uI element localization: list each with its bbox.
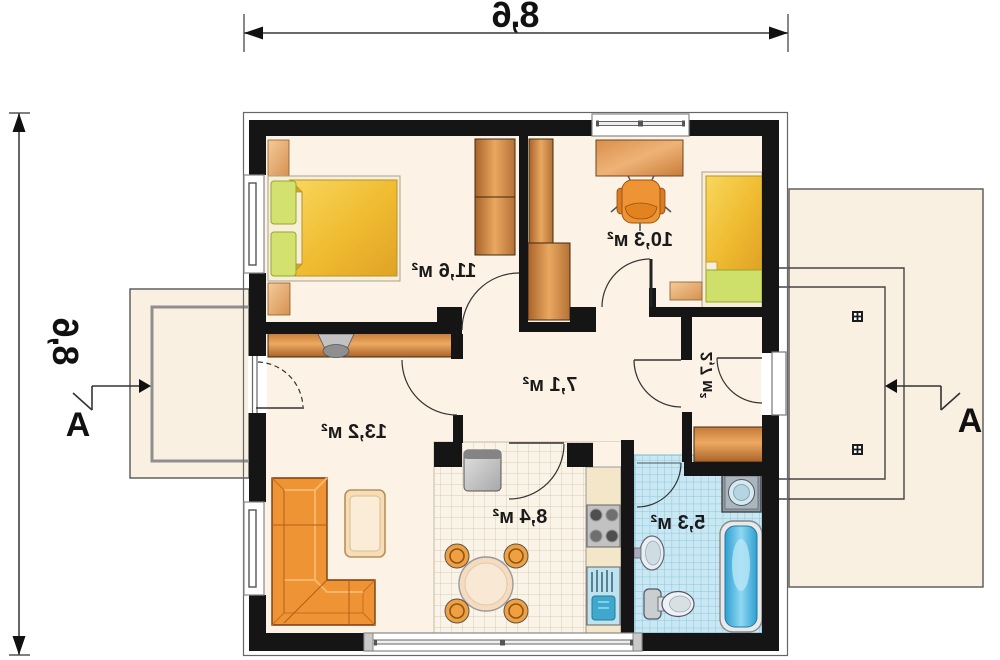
svg-text:7,1 м²: 7,1 м² <box>522 374 577 396</box>
svg-text:8,6: 8,6 <box>492 0 539 35</box>
svg-text:2,7 м²: 2,7 м² <box>697 352 716 399</box>
svg-text:A: A <box>66 406 91 444</box>
svg-text:10,3 м²: 10,3 м² <box>607 229 673 251</box>
svg-text:A: A <box>958 402 983 440</box>
svg-text:13,2 м²: 13,2 м² <box>321 421 387 443</box>
svg-text:8,4 м²: 8,4 м² <box>492 506 547 528</box>
svg-text:5,3 м²: 5,3 м² <box>650 512 705 534</box>
svg-text:8,6: 8,6 <box>45 318 86 365</box>
svg-text:11,6 м²: 11,6 м² <box>411 260 476 282</box>
